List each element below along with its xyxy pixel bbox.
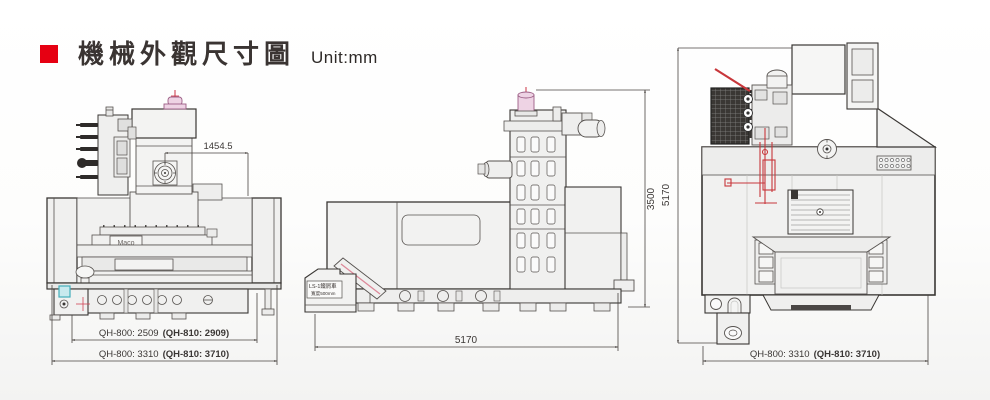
side-view-drawing: LS-1鐵屑車 寬度500mm 3500 5170: [298, 83, 668, 363]
figure-header: 機械外觀尺寸圖 Unit:mm: [40, 42, 378, 68]
front-view-drawing: Maco: [40, 85, 290, 377]
red-square-bullet-icon: [40, 45, 58, 63]
dim-depth: 5170: [661, 183, 672, 206]
top-worktable: [788, 190, 853, 234]
front-top-cap: [164, 90, 186, 109]
tool-pots: [744, 95, 753, 132]
side-top-cylinder: [515, 87, 537, 116]
side-bed: [345, 289, 621, 311]
front-machine-body: Maco: [47, 90, 281, 320]
dim-overall-width-top: QH-800: 3310(QH-810: 3710): [750, 349, 880, 360]
operator-panel: [792, 45, 845, 94]
side-column: [504, 110, 570, 290]
tool-magazine: [76, 107, 136, 195]
rotary-unit: [818, 140, 837, 159]
dim-head-width: 1454.5: [203, 141, 232, 152]
dim-overall-width: QH-800: 3310(QH-810: 3710): [99, 349, 229, 360]
catalog-dimension-figure: 機械外觀尺寸圖 Unit:mm: [0, 0, 990, 400]
dim-length: 5170: [455, 335, 478, 346]
chip-cart: LS-1鐵屑車 寬度500mm: [305, 269, 356, 312]
vent-panel: [877, 156, 911, 170]
unit-label: Unit:mm: [311, 48, 378, 68]
spindle-nose: [153, 161, 177, 185]
side-spindle: [478, 161, 512, 178]
dim-table-width: QH-800: 2509(QH-810: 2909): [99, 328, 229, 339]
chip-cart-label: LS-1鐵屑車: [309, 282, 337, 290]
top-machine-body: [702, 43, 935, 344]
figure-title: 機械外觀尺寸圖: [78, 42, 295, 66]
side-machine-body: LS-1鐵屑車 寬度500mm: [305, 87, 634, 312]
coolant-indicator: [59, 286, 70, 297]
tool-changer-arm: [562, 113, 605, 137]
chip-cart-sublabel: 寬度500mm: [311, 290, 336, 297]
top-view-drawing: 5170 QH-800: 3310(QH-810: 3710): [655, 32, 990, 372]
machine-base: [50, 286, 274, 320]
top-chip-cart: [705, 295, 750, 344]
